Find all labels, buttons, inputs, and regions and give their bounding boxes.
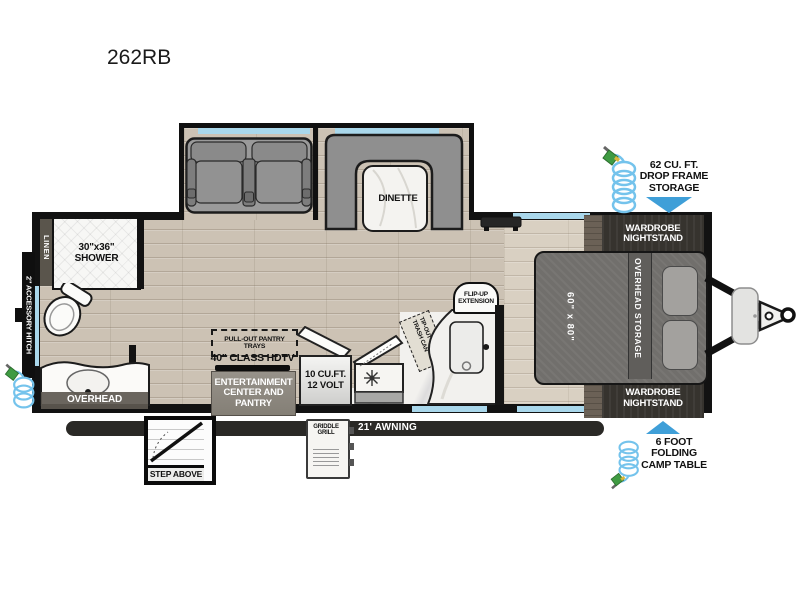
bedroom-divider-wall: [495, 305, 504, 405]
step-above-label: STEP ABOVE: [148, 465, 204, 481]
entry-step: STEP ABOVE: [144, 416, 216, 485]
kitchen-counter-icon: [422, 309, 502, 405]
linen-label: LINEN: [42, 235, 50, 260]
bath-wall-upper: [137, 217, 144, 289]
wardrobe-nightstand-top: WARDROBE NIGHTSTAND: [602, 215, 704, 253]
sofa-slide-window: [198, 128, 310, 134]
toilet-icon: [36, 283, 94, 341]
drop-frame-storage-label: 62 CU. FT. DROP FRAME STORAGE: [626, 160, 722, 194]
entertainment-center: ENTERTAINMENT CENTER AND PANTRY: [211, 371, 296, 416]
trailer-hitch-icon: [704, 266, 796, 366]
pillow-icon: [662, 320, 698, 370]
flip-up-extension: FLIP-UP EXTENSION: [453, 282, 499, 314]
griddle-knob-icon: [349, 443, 354, 450]
bed: [534, 251, 708, 385]
accessory-hitch-strip: 2" ACCESSORY HITCH: [22, 252, 35, 378]
arrow-up-icon: [646, 421, 680, 435]
dinette-label: DINETTE: [366, 192, 430, 206]
griddle-grill-label: GRIDDLE GRILL: [308, 424, 344, 437]
pillow-icon: [662, 266, 698, 316]
griddle-knob-icon: [349, 427, 354, 434]
bedroom-bottom-window: [517, 406, 590, 412]
kitchen-bottom-window: [412, 406, 487, 412]
bed-size-label: 60" x 80": [564, 292, 574, 342]
stove-icon: [352, 334, 406, 404]
floorplan: 262RB DINETTE LINEN 30"x36" S: [0, 0, 800, 600]
overhead-cabinet-label: OVERHEAD: [41, 392, 148, 409]
water-hose-icon: [0, 362, 44, 410]
accessory-hitch-label: 2" ACCESSORY HITCH: [25, 252, 33, 378]
theater-seating-icon: [185, 137, 313, 214]
shower: 30"x36" SHOWER: [52, 217, 141, 290]
tv-icon: [215, 365, 290, 371]
page-title: 262RB: [107, 46, 171, 70]
griddle-grill: GRIDDLE GRILL: [306, 419, 350, 479]
bedroom-top-window: [513, 213, 590, 219]
step-diagonal-icon: [148, 420, 204, 464]
griddle-knob-icon: [349, 459, 354, 466]
bedroom-console-icon: [480, 216, 522, 232]
overhead-storage-label: OVERHEAD STORAGE: [633, 258, 642, 358]
griddle-lines: [313, 449, 339, 469]
arrow-down-icon: [645, 196, 693, 214]
camp-table-label: 6 FOOT FOLDING CAMP TABLE: [624, 437, 724, 471]
refrigerator: 10 CU.FT. 12 VOLT: [299, 355, 352, 406]
awning-label: 21' AWNING: [358, 423, 417, 434]
dinette-booth-icon: [318, 130, 470, 232]
wardrobe-wood-top: [584, 215, 602, 253]
linen-cabinet: LINEN: [40, 219, 52, 286]
hdtv-label: 40" CLASS HDTV: [209, 352, 296, 365]
